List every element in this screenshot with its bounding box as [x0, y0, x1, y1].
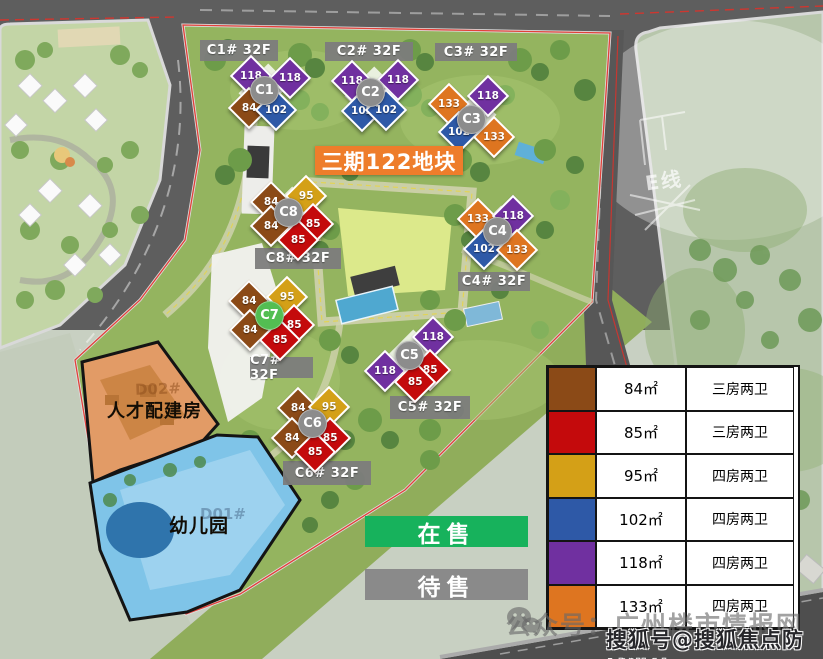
unit-area: 133	[438, 98, 460, 110]
building-banner-c1: C1# 32F	[200, 40, 278, 61]
unit-area: 85	[291, 234, 306, 246]
unit-area: 85	[273, 334, 288, 346]
unit-area: 118	[279, 72, 301, 84]
legend-type: 四房两卫	[686, 541, 794, 585]
unit-area: 102	[375, 104, 397, 116]
legend-type: 三房两卫	[686, 367, 794, 411]
building-banner-c4: C4# 32F	[458, 272, 530, 291]
legend-swatch	[548, 367, 596, 411]
building-circle-c5: C5	[395, 341, 424, 370]
unit-area: 84	[243, 324, 258, 336]
unit-legend-table: 84㎡ 三房两卫 85㎡ 三房两卫 95㎡ 四房两卫 102㎡ 四房两卫 118…	[546, 365, 800, 630]
unit-area: 133	[506, 244, 528, 256]
sohu-watermark: 搜狐号@搜狐焦点防城港站	[606, 624, 823, 659]
site-plan-screenshot: C1# 32F C2# 32F C3# 32F C4# 32F C5# 32F …	[0, 0, 823, 659]
legend-area: 85㎡	[596, 411, 686, 455]
phase-title-banner: 三期122地块	[315, 146, 463, 175]
status-banner-on-sale: 在售	[365, 516, 528, 547]
unit-area: 95	[299, 190, 314, 202]
legend-swatch	[548, 541, 596, 585]
building-banner-c2: C2# 32F	[325, 42, 413, 61]
unit-area: 95	[322, 401, 337, 413]
wechat-icon	[506, 606, 540, 636]
unit-area: 85	[308, 446, 323, 458]
legend-area: 84㎡	[596, 367, 686, 411]
legend-area: 95㎡	[596, 454, 686, 498]
unit-area: 118	[387, 74, 409, 86]
talent-housing-plot-code: D02#	[135, 379, 182, 399]
legend-swatch	[548, 498, 596, 542]
legend-type: 四房两卫	[686, 454, 794, 498]
unit-area: 85	[408, 376, 423, 388]
building-circle-c7: C7	[255, 301, 284, 330]
legend-type: 三房两卫	[686, 411, 794, 455]
unit-area: 84	[242, 295, 257, 307]
legend-area: 102㎡	[596, 498, 686, 542]
legend-swatch	[548, 454, 596, 498]
building-circle-c6: C6	[298, 409, 327, 438]
e-line-annotation: E线	[643, 163, 684, 197]
unit-area: 102	[265, 104, 287, 116]
kindergarten-label: 幼儿园	[169, 511, 229, 538]
building-circle-c2: C2	[356, 78, 385, 107]
unit-area: 84	[242, 102, 257, 114]
building-circle-c3: C3	[457, 105, 486, 134]
building-circle-c1: C1	[250, 76, 279, 105]
unit-area: 118	[477, 90, 499, 102]
unit-area: 84	[264, 220, 279, 232]
building-banner-c6: C6# 32F	[283, 461, 371, 485]
unit-area: 84	[285, 432, 300, 444]
unit-area: 95	[280, 291, 295, 303]
building-circle-c4: C4	[483, 217, 512, 246]
unit-area: 118	[422, 331, 444, 343]
talent-housing-label: 人才配建房	[107, 397, 202, 423]
legend-type: 四房两卫	[686, 498, 794, 542]
building-banner-c5: C5# 32F	[390, 396, 470, 419]
unit-area: 118	[374, 365, 396, 377]
legend-area: 118㎡	[596, 541, 686, 585]
unit-area: 133	[483, 131, 505, 143]
building-circle-c8: C8	[274, 198, 303, 227]
legend-swatch	[548, 411, 596, 455]
status-banner-pending: 待售	[365, 569, 528, 600]
building-banner-c7: C7# 32F	[250, 357, 313, 378]
building-banner-c3: C3# 32F	[435, 43, 517, 61]
